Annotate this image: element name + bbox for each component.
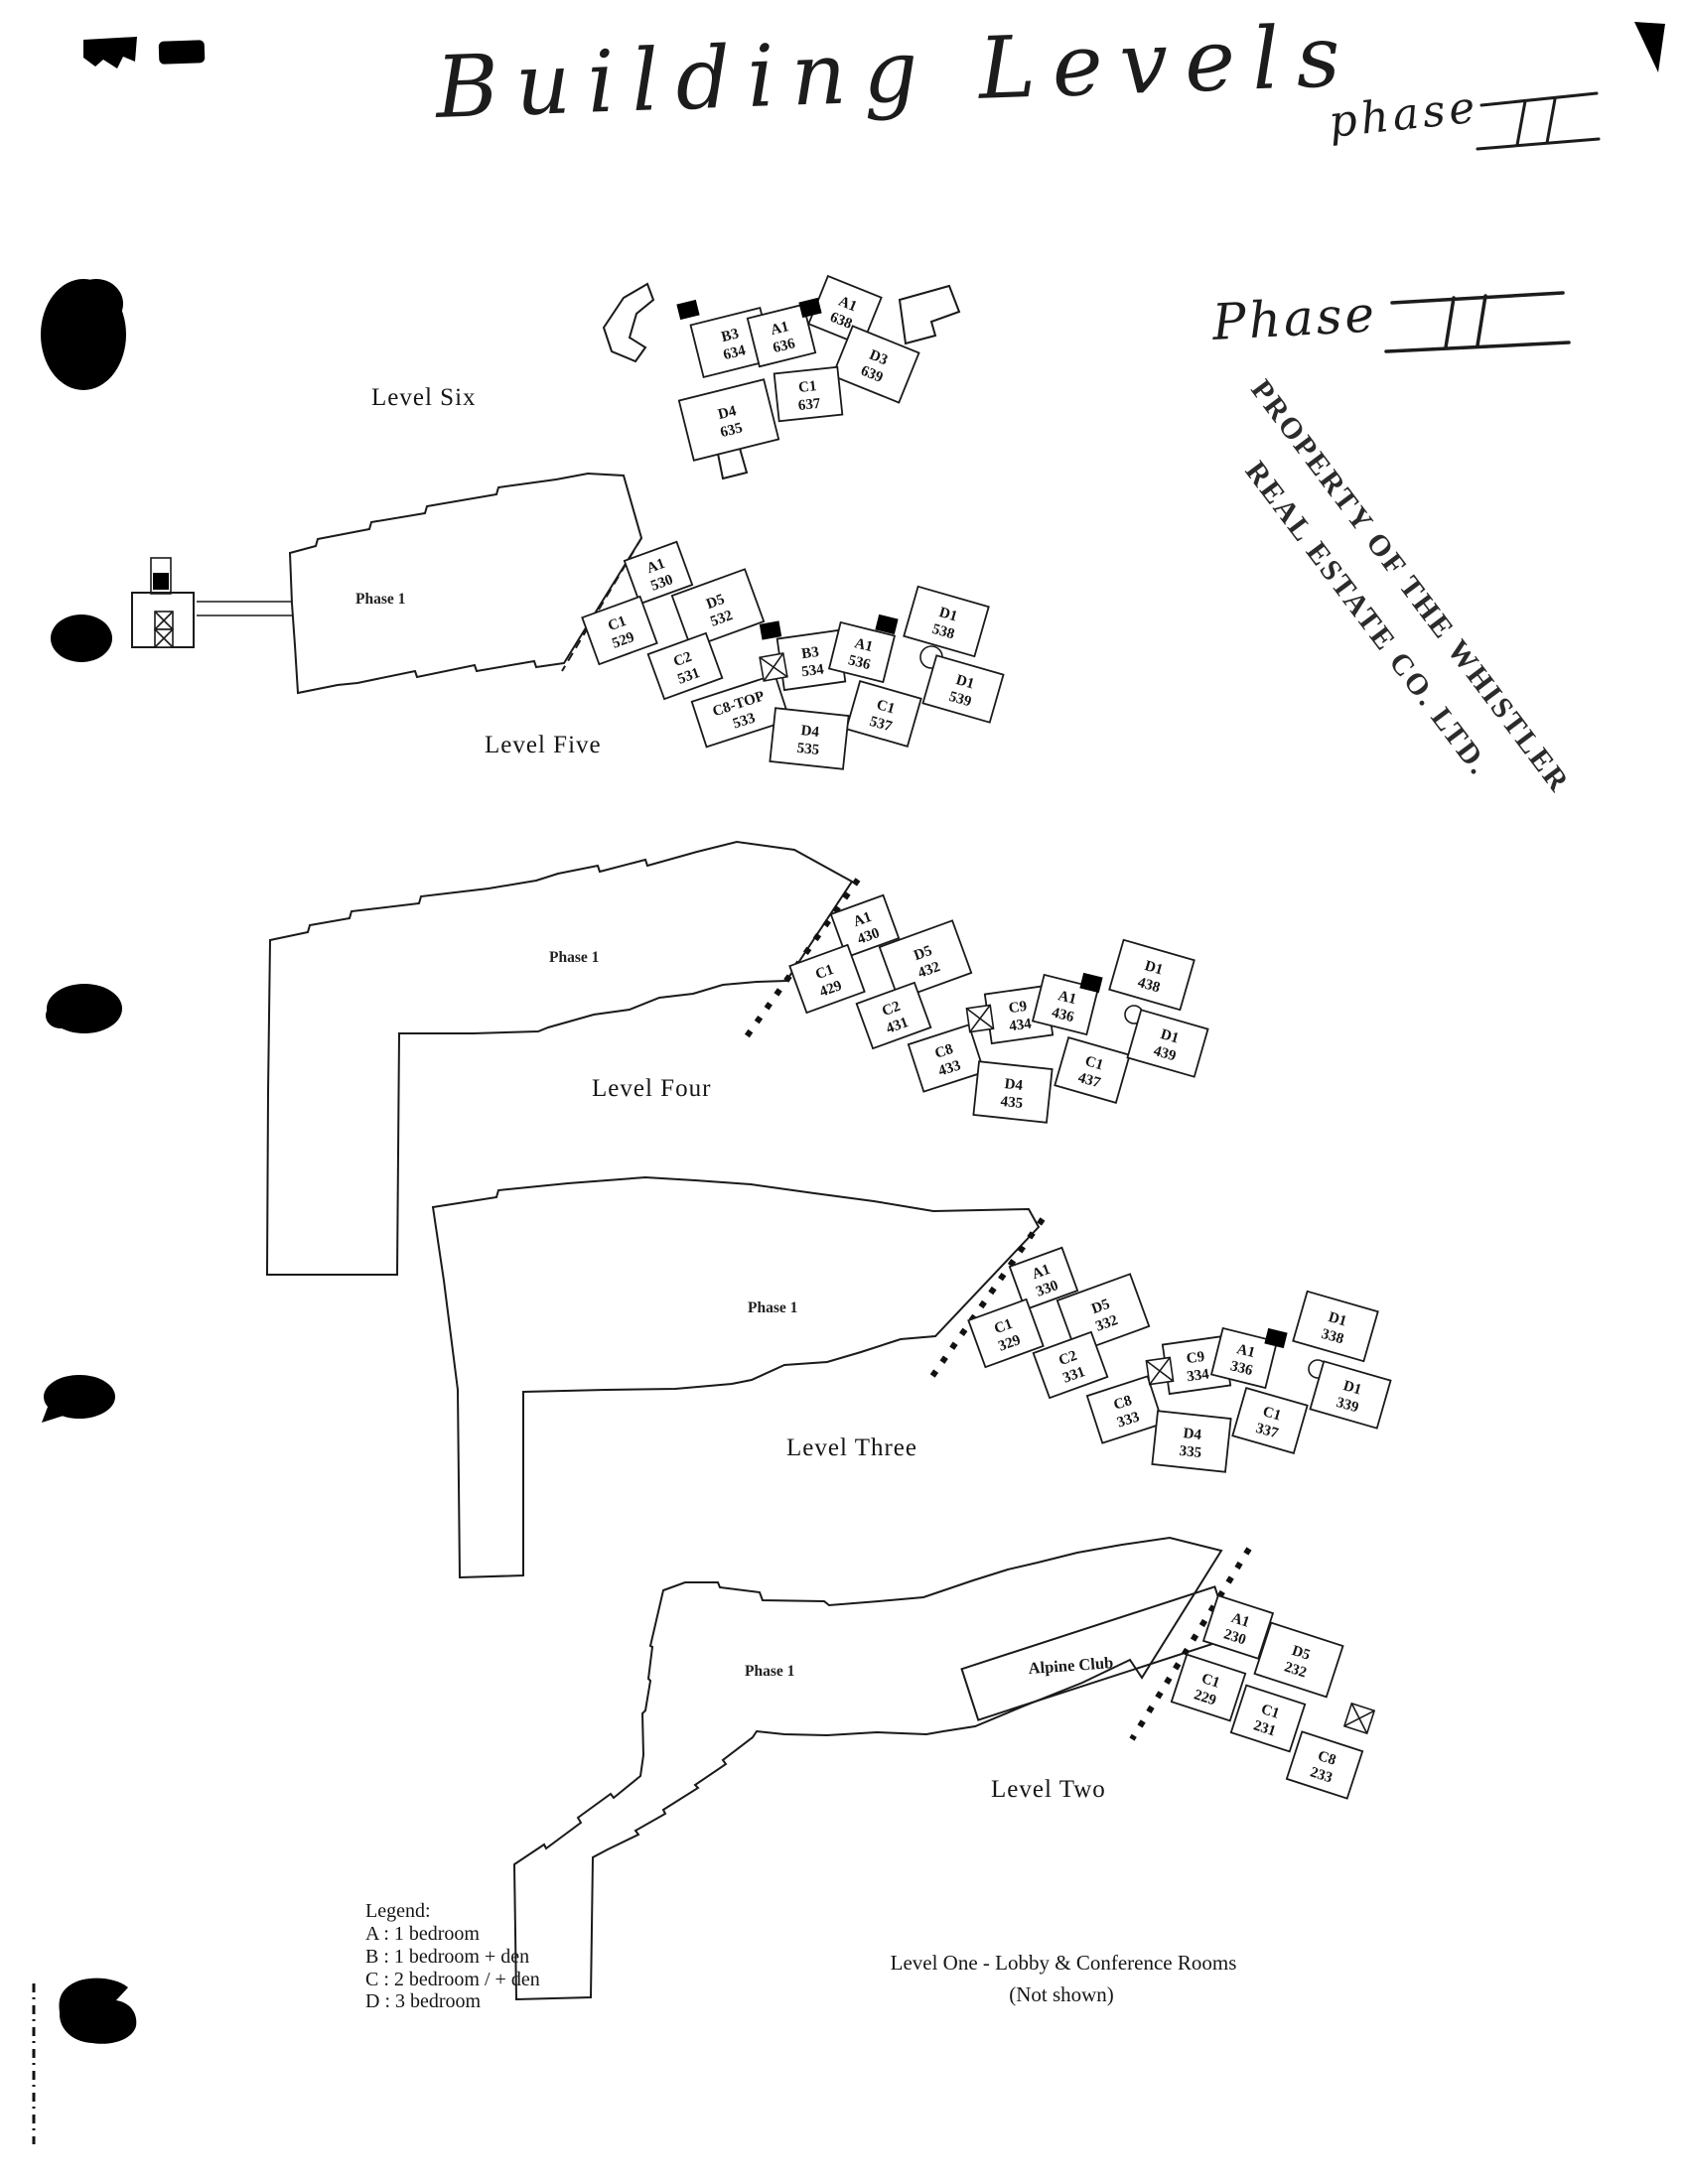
phase1-label: Phase 1	[745, 1663, 794, 1680]
legend-title: Legend:	[365, 1900, 431, 1922]
unit-number: 334	[1186, 1366, 1210, 1385]
level-two-label: Level Two	[991, 1776, 1106, 1803]
handwritten-phase-side: Phase	[1210, 285, 1569, 351]
unit-box: D4 435	[973, 1061, 1052, 1122]
elevator-x-icon	[155, 629, 173, 647]
toner-mark	[83, 37, 137, 68]
unit-code: C9	[1186, 1349, 1205, 1367]
phase1-outline	[433, 1177, 1039, 1577]
phase1-outline	[267, 842, 852, 1275]
unit-box: D1 339	[1310, 1361, 1390, 1428]
unit-box: C8 233	[1287, 1731, 1362, 1798]
footer-line1: Level One - Lobby & Conference Rooms	[891, 1951, 1237, 1975]
level-three-label: Level Three	[786, 1434, 917, 1461]
floorplan-canvas: Building Levels phase Phase PROPERTY OF …	[0, 0, 1688, 2184]
toner-mark	[159, 40, 206, 65]
unit-number: 637	[797, 396, 822, 414]
hole-punch-blob	[70, 279, 123, 329]
unit-code: D4	[1004, 1076, 1024, 1094]
unit-number: 535	[796, 741, 820, 758]
unit-box: C1 231	[1231, 1686, 1305, 1752]
unit-box: D4 535	[770, 708, 848, 768]
elevator-x-icon	[760, 653, 787, 681]
unit-box: D5 232	[1255, 1623, 1343, 1698]
phase1-outline	[290, 474, 641, 693]
corner-triangle-mark	[1634, 22, 1665, 72]
level-four-label: Level Four	[592, 1075, 711, 1102]
unit-box: C1 537	[846, 681, 920, 747]
phase1-label: Phase 1	[748, 1299, 797, 1316]
unit-number: 534	[800, 661, 825, 680]
phase1-label: Phase 1	[549, 949, 599, 966]
elevator-shaft-mark	[153, 573, 169, 590]
legend-item: B : 1 bedroom + den	[365, 1946, 529, 1968]
unit-box: C1 437	[1055, 1037, 1129, 1103]
unit-box: D1 439	[1127, 1010, 1207, 1076]
level-three-plan: A1 330 C1 329 D5 332 C2 331 C8 333 C9 33…	[433, 1177, 1391, 1577]
level-four-plan: A1 430 C1 429 D5 432 C2 431 C8 433 C9 43…	[267, 842, 1208, 1275]
unit-code: D4	[1183, 1426, 1202, 1443]
handwritten-numeral-ii	[1386, 293, 1569, 351]
handwritten-header: Building Levels phase	[432, 7, 1599, 149]
level-two-plan: Alpine Club A1 230 C1 229 D5 232 C1 231 …	[514, 1538, 1374, 1999]
legend: Legend: A : 1 bedroom B : 1 bedroom + de…	[365, 1900, 540, 2012]
unit-box: D1 539	[922, 655, 1003, 722]
unit-box: C1 637	[774, 367, 843, 421]
phase1-label: Phase 1	[355, 591, 405, 608]
level-five-label: Level Five	[485, 732, 602, 758]
unit-box: D4 335	[1152, 1411, 1230, 1471]
elevator-tower	[132, 558, 194, 647]
elevator-x-icon	[155, 612, 173, 629]
level-six-label: Level Six	[371, 384, 477, 411]
corridor-lines	[197, 602, 292, 615]
legend-item: D : 3 bedroom	[365, 1990, 482, 2012]
unit-box: C1 229	[1172, 1655, 1245, 1721]
unit-box: C2 531	[648, 633, 723, 699]
scanned-floorplan-page: Building Levels phase Phase PROPERTY OF …	[0, 0, 1688, 2184]
handwritten-numeral-ii	[1477, 93, 1599, 149]
unit-box: C1 329	[968, 1299, 1043, 1367]
level-five-plan: A1 530 C1 529 D5 532 C2 531 C8-TOP 533 B…	[132, 474, 1004, 769]
stair-appendage-outline	[604, 284, 653, 361]
wing-extension-outline	[900, 286, 959, 343]
elevator-shaft-mark	[760, 620, 781, 639]
elevator-shaft-mark	[676, 300, 699, 320]
unit-code: D4	[800, 723, 820, 741]
elevator-x-icon	[1344, 1704, 1374, 1733]
handwritten-phase-word: Phase	[1210, 285, 1379, 351]
unit-box: D1 538	[904, 587, 988, 656]
unit-box: D4 635	[679, 379, 778, 460]
ownership-stamp: PROPERTY OF THE WHISTLER REAL ESTATE CO.…	[1201, 373, 1576, 831]
legend-item: C : 2 bedroom / + den	[365, 1969, 540, 1990]
unit-box: C1 529	[582, 597, 656, 664]
elevator-x-icon	[966, 1005, 993, 1031]
footer-note: Level One - Lobby & Conference Rooms (No…	[891, 1951, 1237, 2006]
unit-number: 435	[1000, 1094, 1024, 1112]
unit-box: D1 438	[1109, 940, 1194, 1010]
unit-code: C1	[797, 378, 817, 396]
unit-number: 335	[1179, 1443, 1202, 1461]
footer-line2: (Not shown)	[1009, 1982, 1114, 2006]
hole-punch-blob	[46, 1003, 75, 1028]
unit-box: C1 337	[1232, 1388, 1307, 1453]
legend-item: A : 1 bedroom	[365, 1923, 480, 1945]
phase1-outline	[514, 1538, 1221, 1999]
unit-box: D1 338	[1293, 1292, 1377, 1361]
unit-code: C9	[1008, 999, 1028, 1017]
level-six-plan: B3 634 A1 636 A1 638 D3 639 C1 637 D4 63…	[371, 276, 959, 478]
hole-punch-blob	[51, 614, 112, 662]
unit-number: 434	[1008, 1016, 1033, 1034]
hole-punch-blob	[59, 1979, 136, 2044]
unit-box: C8 433	[909, 1024, 984, 1091]
handwritten-title: Building Levels	[432, 7, 1358, 138]
unit-code: B3	[800, 644, 820, 662]
stamp-line1: PROPERTY OF THE WHISTLER	[1244, 373, 1576, 798]
elevator-x-icon	[1146, 1357, 1173, 1384]
unit-box: C8 333	[1087, 1376, 1163, 1442]
